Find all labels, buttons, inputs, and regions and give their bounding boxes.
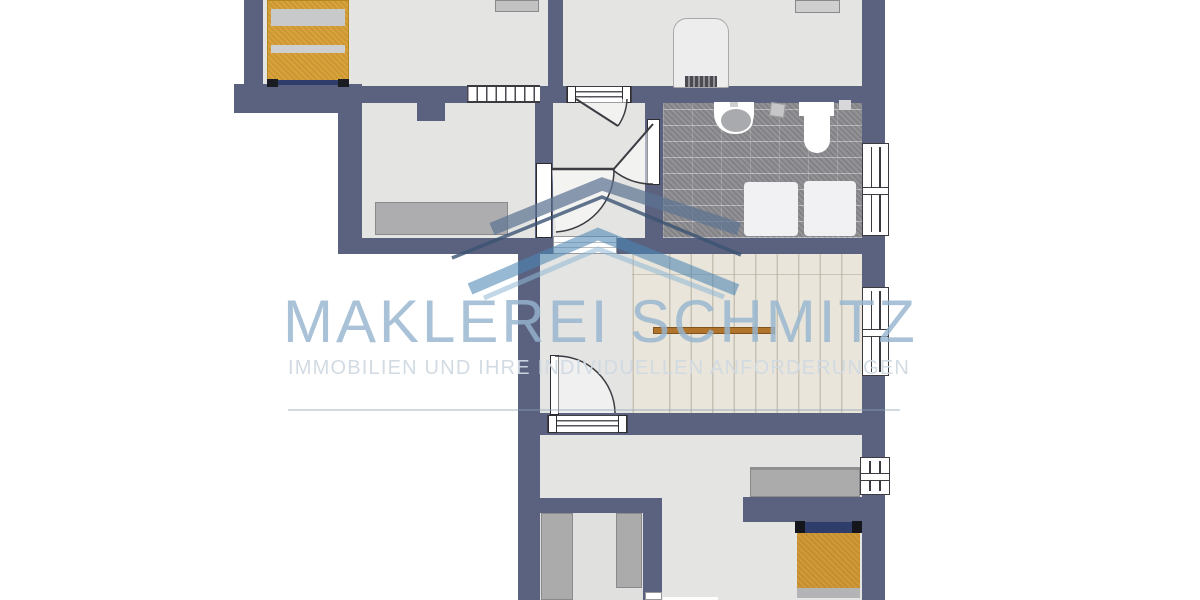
- watermark-rule: [288, 409, 900, 411]
- floorplan-image: MAKLEREI SCHMITZ IMMOBILIEN UND IHRE IND…: [0, 0, 1200, 600]
- watermark-subtitle: IMMOBILIEN UND IHRE INDIVIDUELLEN ANFORD…: [288, 358, 910, 378]
- watermark-title: MAKLEREI SCHMITZ: [283, 292, 918, 352]
- door-sector-middle-room: [552, 169, 614, 232]
